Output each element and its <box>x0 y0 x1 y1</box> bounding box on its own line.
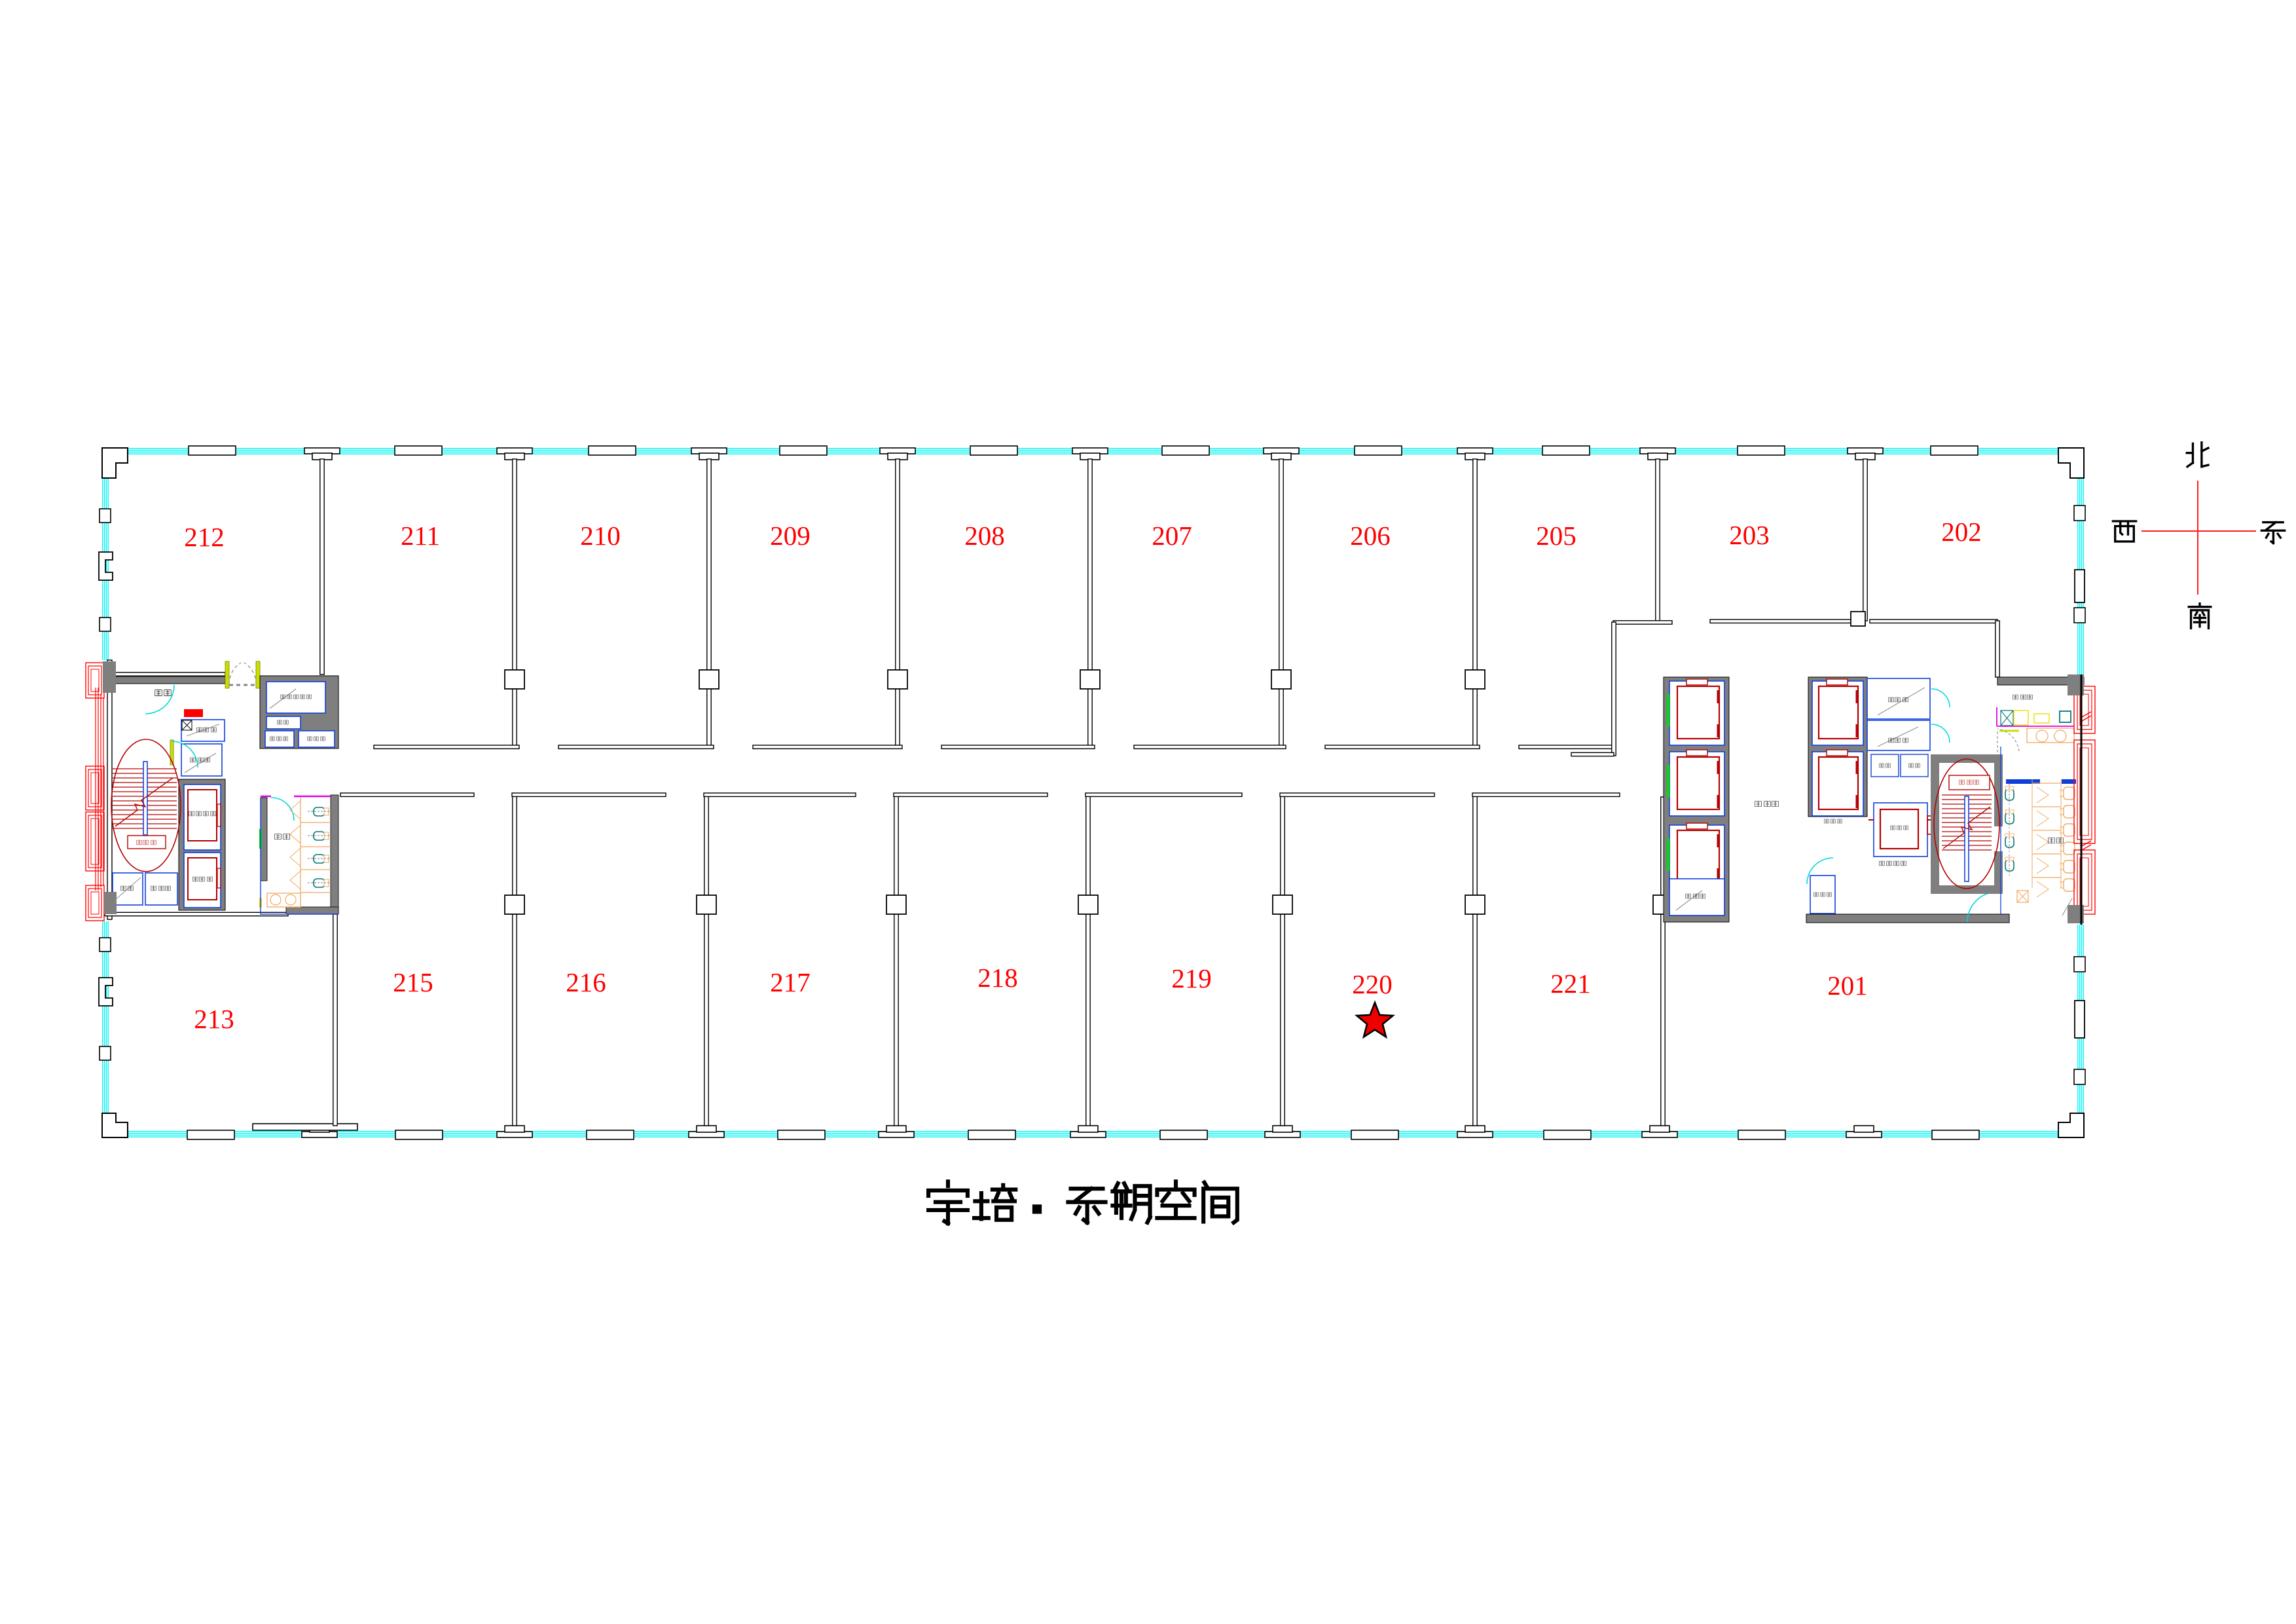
svg-text:219: 219 <box>1171 963 1212 993</box>
svg-text:211: 211 <box>401 521 440 551</box>
svg-text:203: 203 <box>1729 520 1770 550</box>
svg-text:220: 220 <box>1352 969 1393 999</box>
svg-text:212: 212 <box>184 522 225 552</box>
svg-text:208: 208 <box>964 521 1005 551</box>
svg-text:216: 216 <box>566 967 606 997</box>
svg-text:202: 202 <box>1941 517 1982 547</box>
svg-text:215: 215 <box>393 967 433 997</box>
svg-text:207: 207 <box>1152 521 1192 551</box>
svg-text:206: 206 <box>1350 521 1391 551</box>
svg-text:217: 217 <box>770 967 811 997</box>
svg-text:209: 209 <box>770 521 811 551</box>
svg-text:221: 221 <box>1550 969 1591 999</box>
svg-text:218: 218 <box>977 963 1018 993</box>
svg-text:205: 205 <box>1536 521 1576 551</box>
svg-text:210: 210 <box>580 521 621 551</box>
svg-text:201: 201 <box>1827 970 1868 1001</box>
svg-text:213: 213 <box>194 1004 234 1034</box>
